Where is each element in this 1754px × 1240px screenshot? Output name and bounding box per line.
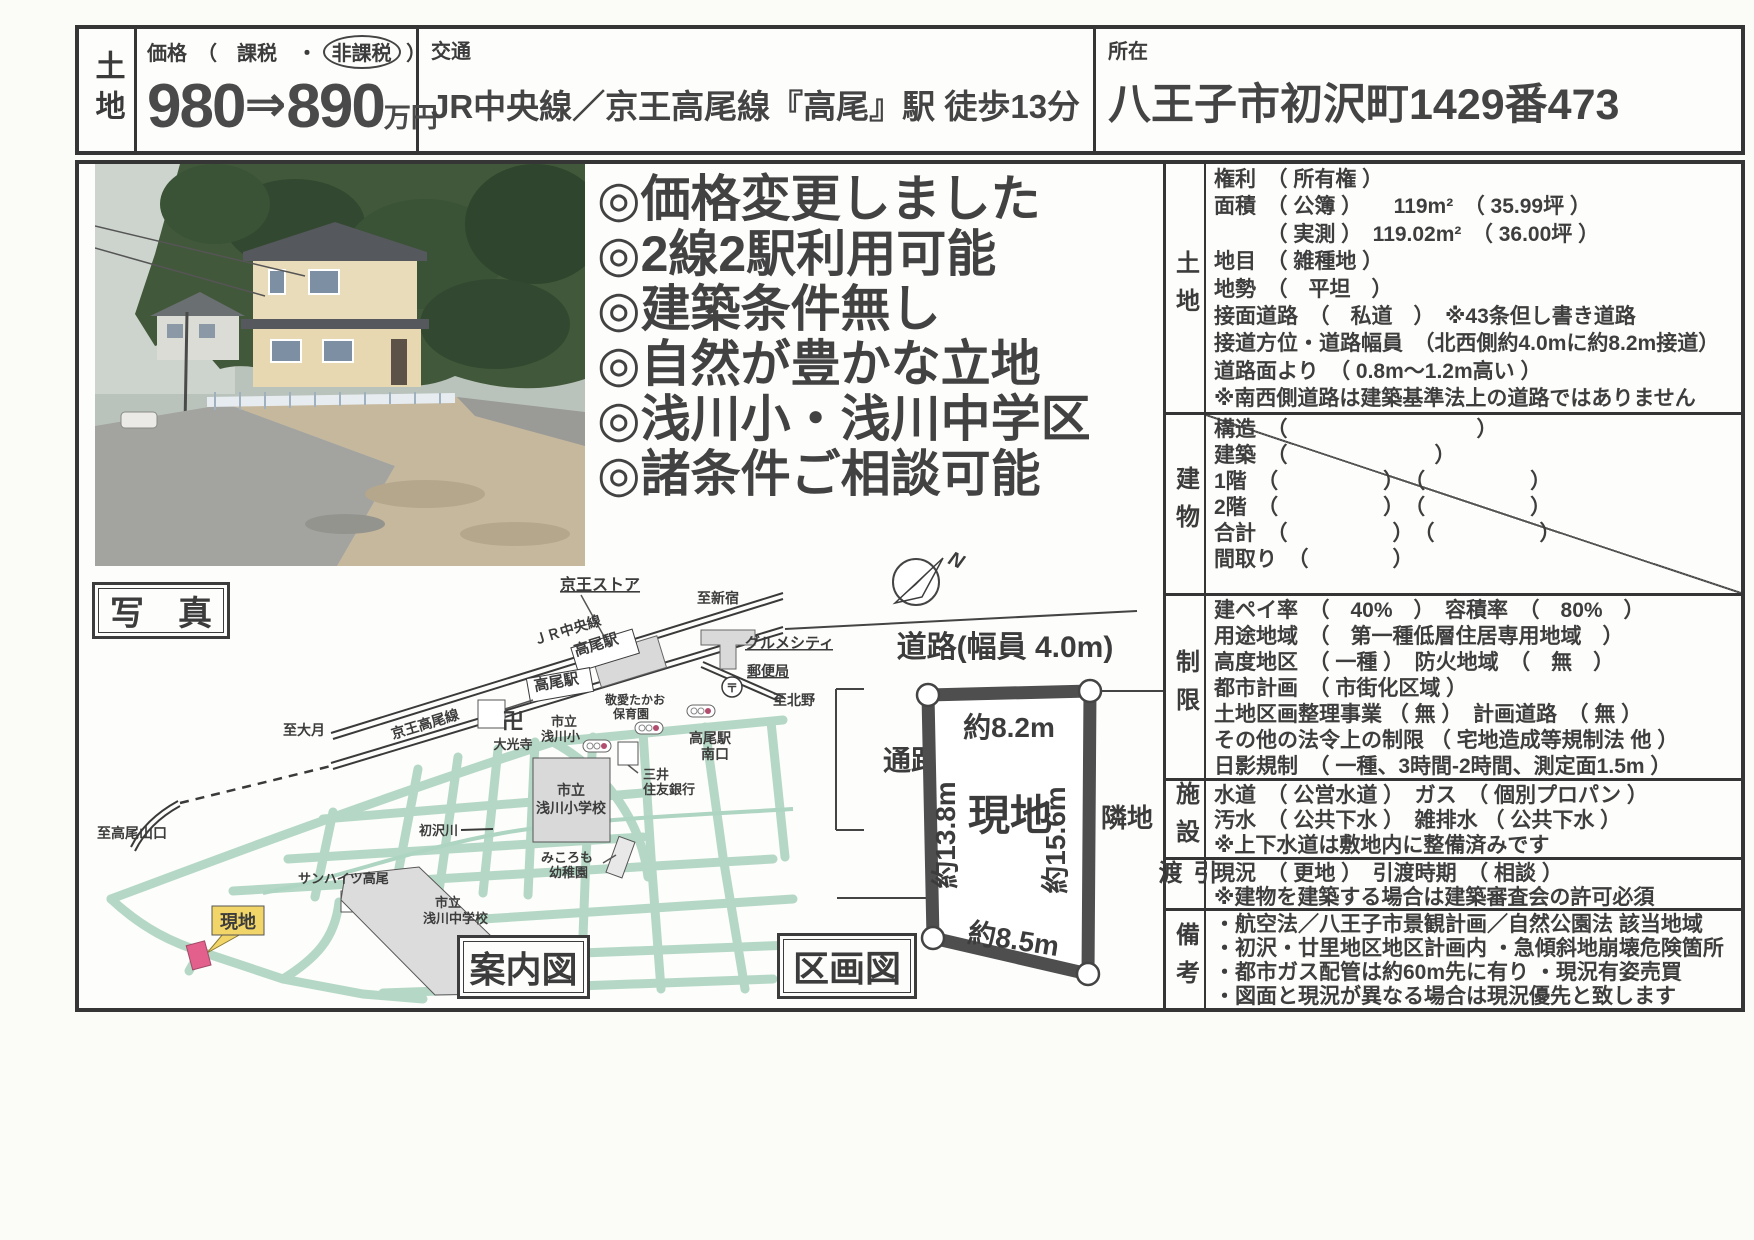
detail-line: ※上下水道は敷地内に整備済みです bbox=[1214, 833, 1737, 857]
map-label-keiai-1: 敬愛たかお bbox=[604, 692, 665, 707]
detail-line: 地目 （ 雑種地 ） bbox=[1214, 248, 1737, 275]
detail-line: 道路面より （ 0.8m～1.2m高い ） bbox=[1214, 358, 1737, 385]
passage-bracket bbox=[836, 689, 926, 898]
property-type-cell: 土地 bbox=[79, 29, 137, 151]
transit-cell: 交通 JR中央線／京王高尾線『高尾』駅 徒歩13分 bbox=[419, 29, 1096, 151]
highlight-list: ◎価格変更しました ◎2線2駅利用可能 ◎建築条件無し ◎自然が豊かな立地 ◎浅… bbox=[597, 172, 1163, 502]
detail-line: ・初沢・廿里地区地区計画内 ・急傾斜地崩壊危険箇所 bbox=[1214, 937, 1737, 961]
detail-line: 日影規制 （ 一種、3時間-2時間、測定面1.5m ） bbox=[1214, 754, 1737, 778]
row-label-land: 土地 bbox=[1168, 250, 1203, 326]
map-label-takao-south-2: 南口 bbox=[701, 746, 729, 762]
highlight-item: ◎価格変更しました bbox=[597, 172, 1163, 227]
detail-line: 地勢 （ 平坦 ） bbox=[1214, 276, 1737, 303]
plot-caption: 区画図 bbox=[793, 940, 901, 992]
detail-line: 建築 （ ） bbox=[1214, 443, 1737, 469]
map-label-site: 現地 bbox=[220, 911, 256, 932]
detail-line: ※建物を建築する場合は建築審査会の許可必須 bbox=[1214, 886, 1737, 908]
lot-site-label: 現地 bbox=[968, 792, 1052, 839]
photo-caption-box: 写 真 bbox=[92, 582, 230, 639]
detail-line: 間取り （ ） bbox=[1214, 547, 1737, 573]
detail-line: 都市計画 （ 市街化区域 ） bbox=[1214, 676, 1737, 702]
detail-line: 1階 （ ） （ ） bbox=[1214, 469, 1737, 495]
detail-line: 合計 （ ） （ ） bbox=[1214, 521, 1737, 547]
map-label-sunheights: サンハイツ高尾 bbox=[298, 871, 389, 886]
detail-line: 水道 （ 公営水道 ） ガス （ 個別プロパン ） bbox=[1214, 783, 1737, 808]
location-label: 所在 bbox=[1108, 35, 1735, 64]
map-label-keiai-2: 保育園 bbox=[612, 706, 649, 721]
map-label-daikoji: 大光寺 bbox=[493, 737, 532, 752]
detail-line: 建ペイ率 （ 40% ） 容積率 （ 80% ） bbox=[1214, 598, 1737, 624]
details-row-remarks: 備考 ・航空法／八王子市景観計画／自然公園法 該当地域 ・初沢・廿里地区地区計画… bbox=[1166, 908, 1741, 1008]
detail-line: ・都市ガス配管は約60m先に有り ・現況有姿売買 bbox=[1214, 961, 1737, 985]
map-label-asakawa-e-2: 浅川小 bbox=[541, 729, 580, 744]
highlight-item: ◎建築条件無し bbox=[597, 282, 1163, 337]
row-label-restrictions: 制限 bbox=[1168, 649, 1203, 725]
highlight-item: ◎2線2駅利用可能 bbox=[597, 227, 1163, 282]
detail-line: ・図面と現況が異なる場合は現況優先と致します bbox=[1214, 985, 1737, 1008]
map-label-asakawa-es-2: 浅川小学校 bbox=[536, 800, 607, 816]
price-tax-label: 価格 （ 課税 ・ 非課税 ） bbox=[147, 35, 408, 69]
details-row-utilities: 施設 水道 （ 公営水道 ） ガス （ 個別プロパン ） 汚水 （ 公共下水 ）… bbox=[1166, 778, 1741, 857]
photo-caption: 写 真 bbox=[110, 586, 212, 635]
detail-line: 面積 （ 公簿 ） 119m² （ 35.99坪 ） bbox=[1214, 193, 1737, 220]
detail-line: 接道方位・道路幅員 （北西側約4.0mに約8.2m接道） bbox=[1214, 330, 1737, 357]
location-cell: 所在 八王子市初沢町1429番473 bbox=[1096, 29, 1741, 151]
transit-label: 交通 bbox=[431, 35, 1087, 64]
lot-left-measure: 約13.8m bbox=[929, 781, 961, 888]
highlight-item: ◎自然が豊かな立地 bbox=[597, 337, 1163, 392]
north-label: N bbox=[945, 548, 968, 574]
lot-top-measure: 約8.2m bbox=[963, 711, 1055, 743]
map-label-to-otsuki: 至大月 bbox=[283, 722, 325, 738]
map-caption: 案内図 bbox=[469, 941, 577, 993]
map-label-to-shinjuku: 至新宿 bbox=[697, 590, 739, 606]
map-label-asakawa-j-2: 浅川中学校 bbox=[423, 911, 489, 926]
details-row-building: 建物 構造 （ ） 建築 （ ） 1階 （ ） （ ） 2階 （ ） （ ） 合… bbox=[1166, 412, 1741, 593]
map-label-smbc-1: 三井 bbox=[643, 767, 669, 782]
north-compass-icon: N bbox=[893, 548, 968, 605]
detail-line: 2階 （ ） （ ） bbox=[1214, 495, 1737, 521]
plot-caption-box: 区画図 bbox=[777, 933, 917, 999]
post-mark: 〒 bbox=[726, 681, 738, 695]
detail-line: ※南西側道路は建築基準法上の道路ではありません bbox=[1214, 385, 1737, 412]
detail-line: その他の法令上の制限 （ 宅地造成等規制法 他 ） bbox=[1214, 728, 1737, 754]
row-label-remarks: 備考 bbox=[1168, 922, 1203, 998]
main-box: 写 真 案内図 区画図 ◎価格変更しました ◎2線2駅利用可能 ◎建築条件無し … bbox=[75, 160, 1745, 1012]
detail-line: 接面道路 （ 私道 ） ※43条但し書き道路 bbox=[1214, 303, 1737, 330]
neighbor-label: 隣地 bbox=[1101, 803, 1153, 833]
highlight-item: ◎諸条件ご相談可能 bbox=[597, 447, 1163, 502]
map-label-mikoromo-2: 幼稚園 bbox=[549, 865, 588, 880]
road-line bbox=[785, 611, 1137, 629]
row-label-building: 建物 bbox=[1168, 466, 1203, 542]
details-row-handover: 引渡 現況 （ 更地 ） 引渡時期 （ 相談 ） ※建物を建築する場合は建築審査… bbox=[1166, 857, 1741, 908]
map-label-mikoromo-1: みころも bbox=[541, 850, 593, 865]
details-table: 土地 権利 （ 所有権 ） 面積 （ 公簿 ） 119m² （ 35.99坪 ）… bbox=[1166, 164, 1741, 1008]
map-label-keio-store: 京王ストア bbox=[560, 575, 640, 594]
taxfree-circled: 非課税 bbox=[323, 35, 401, 69]
location-value: 八王子市初沢町1429番473 bbox=[1108, 70, 1735, 132]
price-old: 980 bbox=[147, 72, 244, 141]
detail-line: ・航空法／八王子市景観計画／自然公園法 該当地域 bbox=[1214, 913, 1737, 937]
property-type-label: 土地 bbox=[85, 50, 129, 130]
price-new: 890 bbox=[286, 72, 383, 141]
transit-value: JR中央線／京王高尾線『高尾』駅 徒歩13分 bbox=[431, 80, 1087, 128]
building-section-struck: 構造 （ ） 建築 （ ） 1階 （ ） （ ） 2階 （ ） （ ） 合計 （… bbox=[1206, 415, 1741, 593]
highlight-item: ◎浅川小・浅川中学区 bbox=[597, 392, 1163, 447]
road-label: 道路(幅員 4.0m) bbox=[897, 631, 1114, 664]
price-cell: 価格 （ 課税 ・ 非課税 ） 980⇒890万円 bbox=[137, 29, 419, 151]
detail-line: 土地区画整理事業 （ 無 ） 計画道路 （ 無 ） bbox=[1214, 702, 1737, 728]
detail-line: 構造 （ ） bbox=[1214, 417, 1737, 443]
detail-line: 現況 （ 更地 ） 引渡時期 （ 相談 ） bbox=[1214, 862, 1737, 886]
details-row-land: 土地 権利 （ 所有権 ） 面積 （ 公簿 ） 119m² （ 35.99坪 ）… bbox=[1166, 164, 1741, 412]
map-label-to-takaosan: 至高尾山口 bbox=[97, 825, 167, 841]
detail-line: 権利 （ 所有権 ） bbox=[1214, 166, 1737, 193]
map-label-asakawa-e-1: 市立 bbox=[551, 714, 577, 729]
price-arrow-icon: ⇒ bbox=[244, 76, 286, 132]
property-photo-image bbox=[95, 164, 585, 566]
map-label-asakawa-es-1: 市立 bbox=[557, 782, 585, 798]
details-row-restrictions: 制限 建ペイ率 （ 40% ） 容積率 （ 80% ） 用途地域 （ 第一種低層… bbox=[1166, 593, 1741, 778]
map-label-takao-south-1: 高尾駅 bbox=[689, 730, 732, 746]
detail-line: （ 実測 ） 119.02m² （ 36.00坪 ） bbox=[1214, 221, 1737, 248]
flyer-canvas: 土地 価格 （ 課税 ・ 非課税 ） 980⇒890万円 交通 JR中央線／京王… bbox=[0, 0, 1754, 1240]
map-label-smbc-2: 住友銀行 bbox=[643, 782, 695, 797]
detail-line: 用途地域 （ 第一種低層住居専用地域 ） bbox=[1214, 624, 1737, 650]
map-label-hatsusawa: 初沢川 bbox=[419, 823, 458, 838]
map-caption-box: 案内図 bbox=[457, 935, 590, 999]
price-value: 980⇒890万円 bbox=[147, 71, 408, 142]
detail-line: 高度地区 （ 一種 ） 防火地域 （ 無 ） bbox=[1214, 650, 1737, 676]
header-bar: 土地 価格 （ 課税 ・ 非課税 ） 980⇒890万円 交通 JR中央線／京王… bbox=[75, 25, 1745, 155]
detail-line: 汚水 （ 公共下水 ） 雑排水 （ 公共下水 ） bbox=[1214, 808, 1737, 833]
temple-manji-icon: 卍 bbox=[502, 709, 524, 734]
property-photo bbox=[95, 164, 585, 566]
row-label-utilities: 施設 bbox=[1168, 781, 1203, 857]
map-label-asakawa-j-1: 市立 bbox=[435, 895, 461, 910]
